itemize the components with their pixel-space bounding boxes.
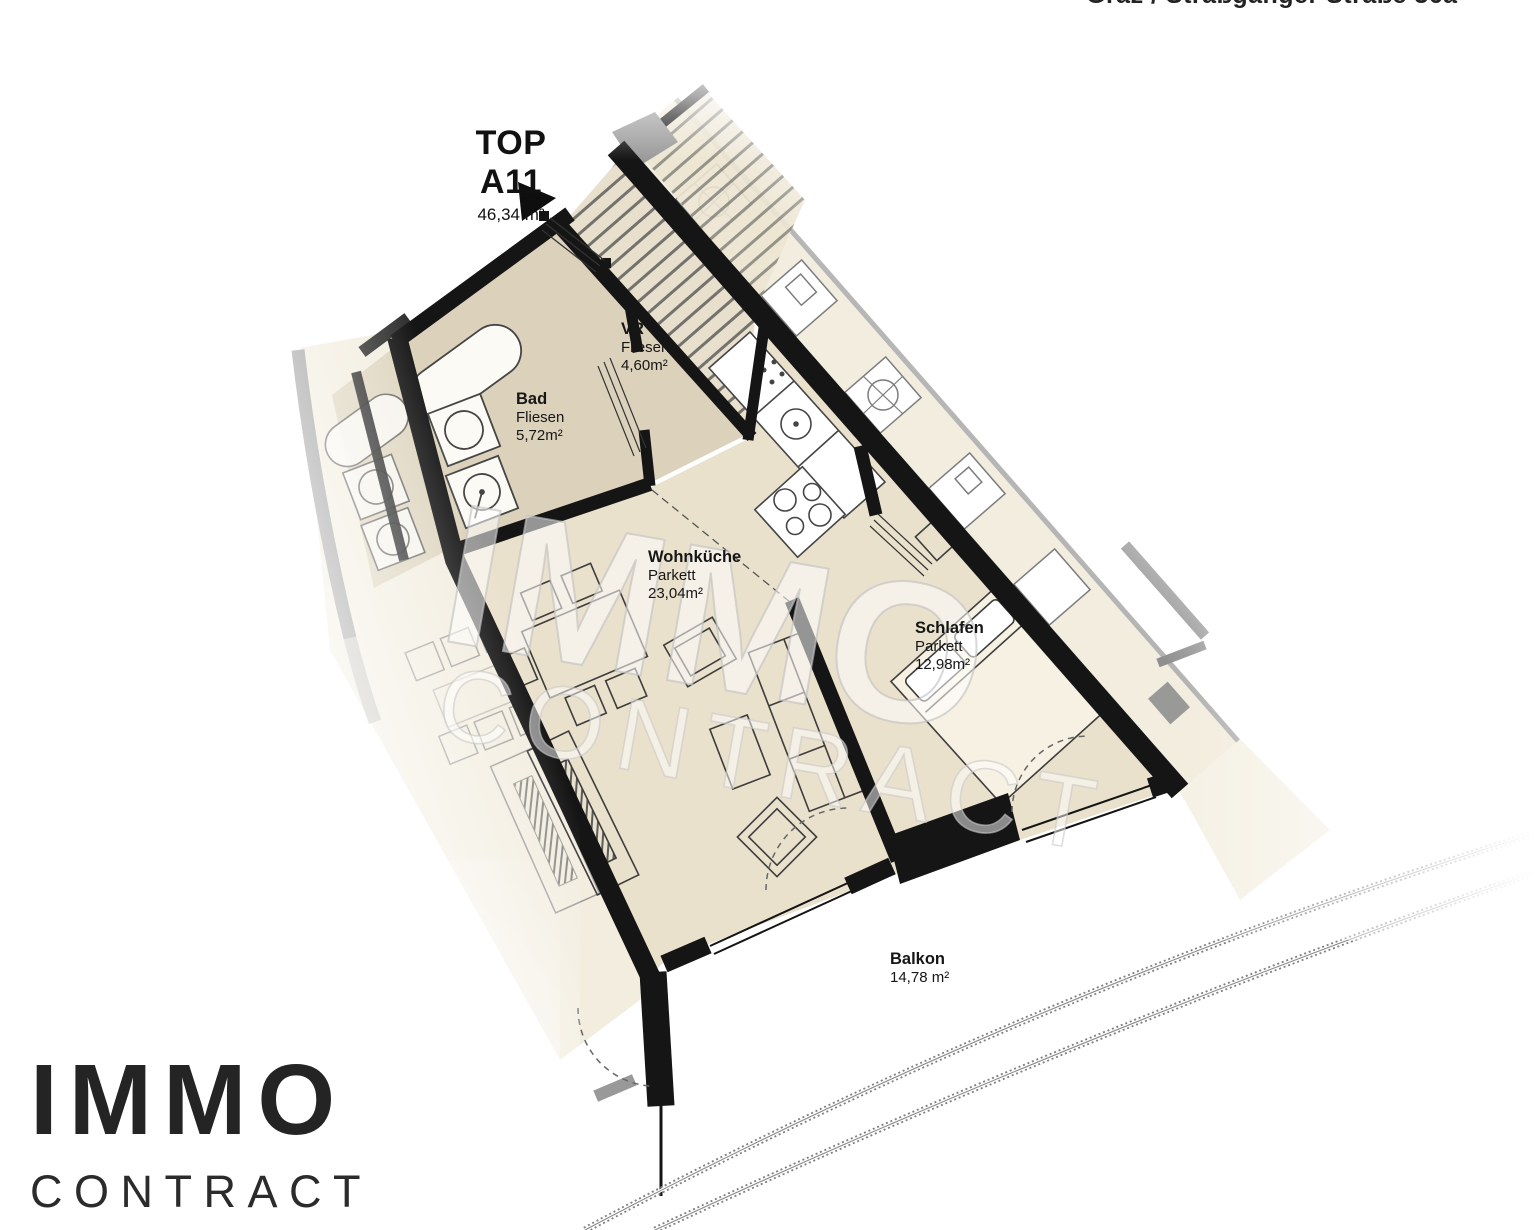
- wall-balcony-stub: [653, 972, 661, 1106]
- room-area: 12,98m²: [915, 656, 984, 674]
- logo-sub-text: CONTRACT: [30, 1166, 372, 1218]
- room-name: Balkon: [890, 950, 949, 969]
- unit-label: TOP A11 46,34 m²: [441, 124, 581, 225]
- room-name: Bad: [516, 390, 564, 409]
- neighbor-gray-stub: [593, 1074, 636, 1101]
- room-label-wohnkueche: Wohnküche Parkett 23,04m²: [648, 548, 741, 603]
- room-area: 4,60m²: [621, 357, 669, 375]
- room-label-schlafen: Schlafen Parkett 12,98m²: [915, 619, 984, 674]
- room-floor: Parkett: [648, 567, 741, 585]
- immo-contract-logo: IMMO CONTRACT: [30, 1050, 372, 1218]
- room-label-balkon: Balkon 14,78 m²: [890, 950, 949, 987]
- floorplan-page: IMMO CONTRACT Graz / Straßganger Straße …: [0, 0, 1536, 1230]
- logo-brand-text: IMMO: [30, 1050, 372, 1150]
- room-name: Schlafen: [915, 619, 984, 638]
- room-name: Wohnküche: [648, 548, 741, 567]
- room-floor: Fliesen: [516, 409, 564, 427]
- unit-area: 46,34 m²: [441, 205, 581, 225]
- room-floor: Parkett: [915, 638, 984, 656]
- room-area: 14,78 m²: [890, 969, 949, 987]
- room-name: VR: [621, 320, 669, 339]
- room-label-bad: Bad Fliesen 5,72m²: [516, 390, 564, 445]
- room-area: 5,72m²: [516, 427, 564, 445]
- address-banner: Graz / Straßganger Straße 36a: [1086, 0, 1458, 10]
- room-area: 23,04m²: [648, 585, 741, 603]
- room-floor: Fliesen: [621, 339, 669, 357]
- room-label-vr: VR Fliesen 4,60m²: [621, 320, 669, 375]
- unit-name: TOP A11: [441, 124, 581, 202]
